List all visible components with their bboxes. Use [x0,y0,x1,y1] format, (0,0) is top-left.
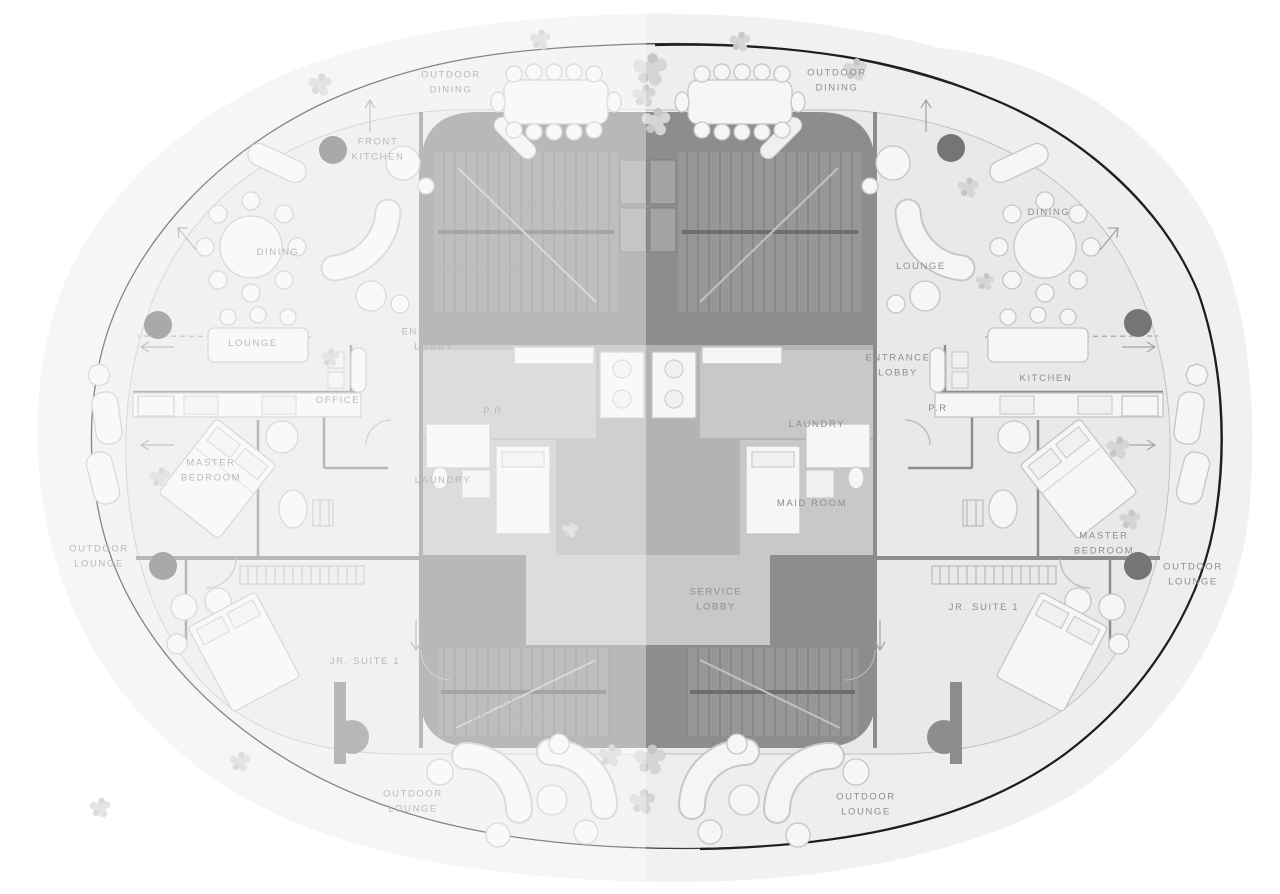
floorplan-stage: OUTDOORDININGOUTDOORDININGFRONTKITCHENMA… [0,0,1280,894]
unit-left-hotspot[interactable] [0,0,646,894]
unit-right-hotspot[interactable] [646,0,1280,894]
